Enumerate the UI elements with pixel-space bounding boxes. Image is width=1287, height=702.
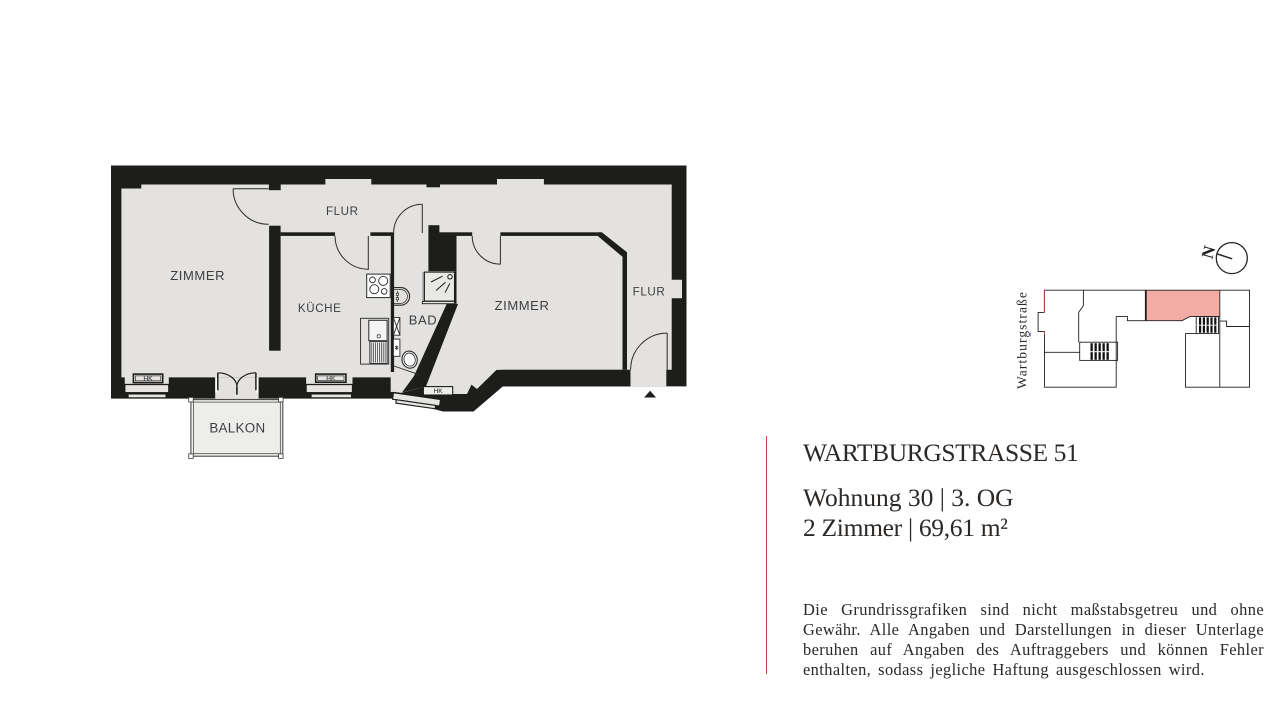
svg-text:KÜCHE: KÜCHE	[298, 302, 342, 315]
svg-text:ZIMMER: ZIMMER	[170, 268, 225, 283]
svg-text:FLUR: FLUR	[326, 205, 359, 218]
svg-text:HK: HK	[143, 376, 153, 383]
svg-text:Wartburgstraße: Wartburgstraße	[1015, 291, 1030, 389]
svg-text:BALKON: BALKON	[209, 420, 265, 435]
svg-text:HK: HK	[434, 388, 444, 395]
svg-text:ZIMMER: ZIMMER	[495, 298, 550, 313]
svg-text:N: N	[1198, 243, 1220, 261]
svg-text:BAD: BAD	[409, 313, 438, 328]
svg-text:FLUR: FLUR	[633, 286, 666, 299]
svg-text:HK: HK	[326, 375, 336, 382]
